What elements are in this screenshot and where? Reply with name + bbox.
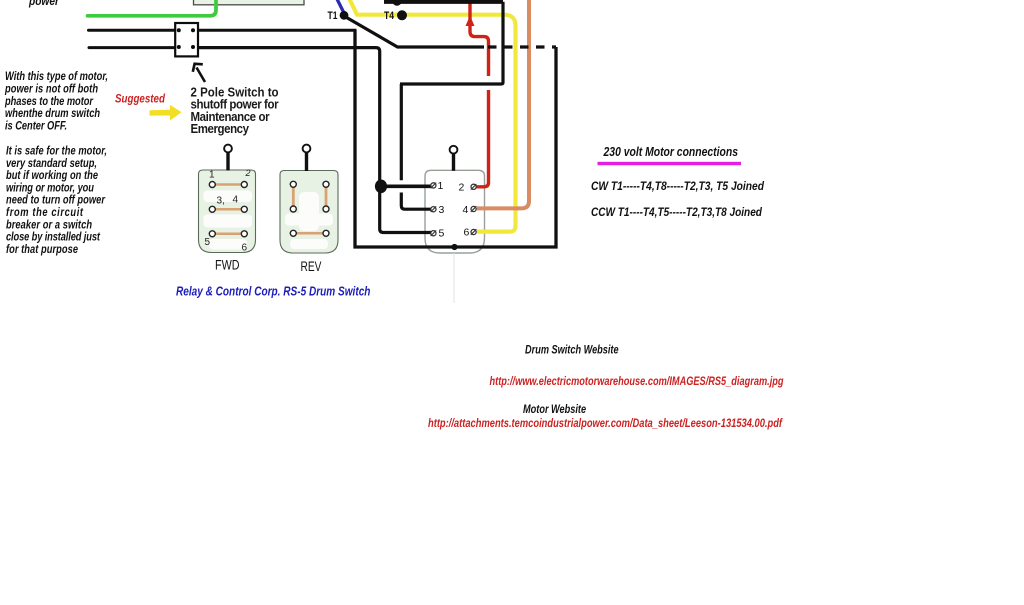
svg-text:2: 2	[459, 182, 465, 194]
svg-text:Suggested: Suggested	[115, 92, 165, 105]
svg-text:Motor Website: Motor Website	[523, 404, 586, 416]
svg-text:Emergency: Emergency	[191, 122, 250, 137]
svg-text:5: 5	[439, 228, 445, 240]
svg-text:CCW T1----T4,T5-----T2,T3,T8 J: CCW T1----T4,T5-----T2,T3,T8 Joined	[591, 206, 763, 219]
svg-text:1: 1	[209, 170, 215, 181]
svg-text:6: 6	[464, 227, 470, 239]
svg-text:4: 4	[463, 204, 469, 216]
svg-text:T1: T1	[328, 10, 338, 22]
svg-text:for that purpose: for that purpose	[6, 243, 78, 257]
svg-text:http://attachments.temcoindust: http://attachments.temcoindustrialpower.…	[428, 418, 783, 430]
svg-text:5: 5	[205, 237, 211, 248]
svg-text:Relay & Control Corp. RS-5 Dru: Relay & Control Corp. RS-5 Drum Switch	[176, 286, 371, 299]
svg-text:2: 2	[245, 168, 251, 178]
svg-text:Drum Switch Website: Drum Switch Website	[525, 345, 619, 357]
svg-text:3,: 3,	[217, 196, 225, 207]
svg-text:http://www.electricmotorwareho: http://www.electricmotorwarehouse.com/IM…	[490, 376, 785, 388]
svg-text:230 volt Motor connections: 230 volt Motor connections	[603, 145, 739, 159]
svg-text:CW T1-----T4,T8-----T2,T3, T5: CW T1-----T4,T8-----T2,T3, T5 Joined	[591, 180, 765, 193]
svg-text:1: 1	[438, 180, 444, 192]
svg-text:4: 4	[233, 195, 239, 206]
svg-text:power: power	[28, 0, 60, 8]
svg-text:T4: T4	[384, 10, 394, 22]
svg-text:REV: REV	[301, 259, 322, 275]
svg-text:3: 3	[439, 204, 445, 216]
svg-text:is Center OFF.: is Center OFF.	[5, 119, 67, 133]
svg-text:6: 6	[242, 243, 248, 254]
svg-text:FWD: FWD	[215, 257, 240, 272]
